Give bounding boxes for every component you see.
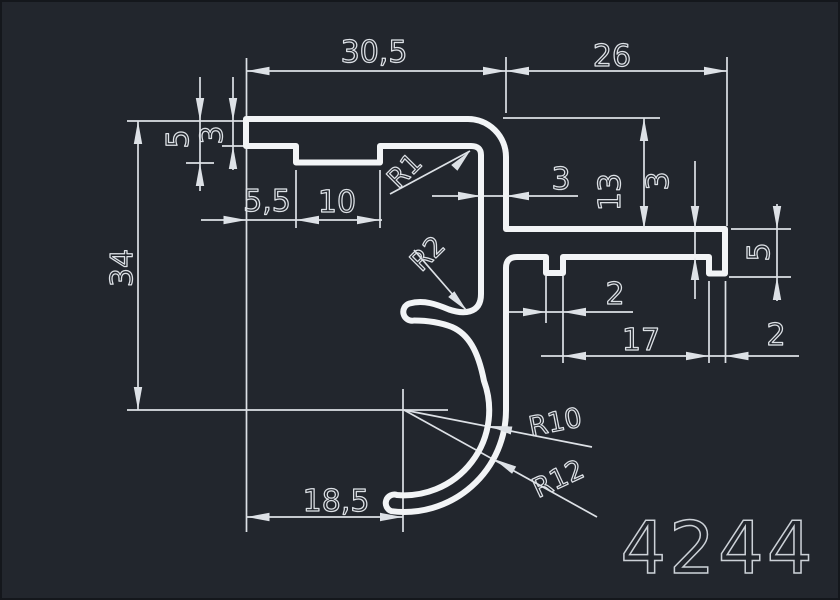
dim-label-10: 10 [318, 185, 356, 220]
dim-label-5-left: 5 [161, 129, 196, 148]
cad-sheet: 30,526535,5103418,5133352172R1R2R10R1242… [0, 0, 840, 600]
part-number: 4244 [620, 506, 815, 590]
dim-label-2-notch: 2 [605, 277, 624, 312]
dim-label-17: 17 [622, 323, 660, 358]
dim-label-3-stem: 3 [551, 162, 570, 197]
dim-label-13: 13 [593, 173, 628, 211]
dim-label-3-arm: 3 [641, 171, 676, 190]
dim-label-3-left: 3 [195, 125, 230, 144]
dim-label-30-5: 30,5 [341, 35, 408, 70]
cad-canvas: 30,526535,5103418,5133352172R1R2R10R1242… [0, 0, 840, 600]
dim-label-26: 26 [593, 39, 631, 74]
dim-label-5-5: 5,5 [243, 184, 291, 219]
dim-label-5-right: 5 [742, 242, 777, 261]
dim-label-18-5: 18,5 [303, 484, 370, 519]
dim-label-34: 34 [105, 249, 140, 287]
dim-label-2-lip: 2 [766, 318, 785, 353]
